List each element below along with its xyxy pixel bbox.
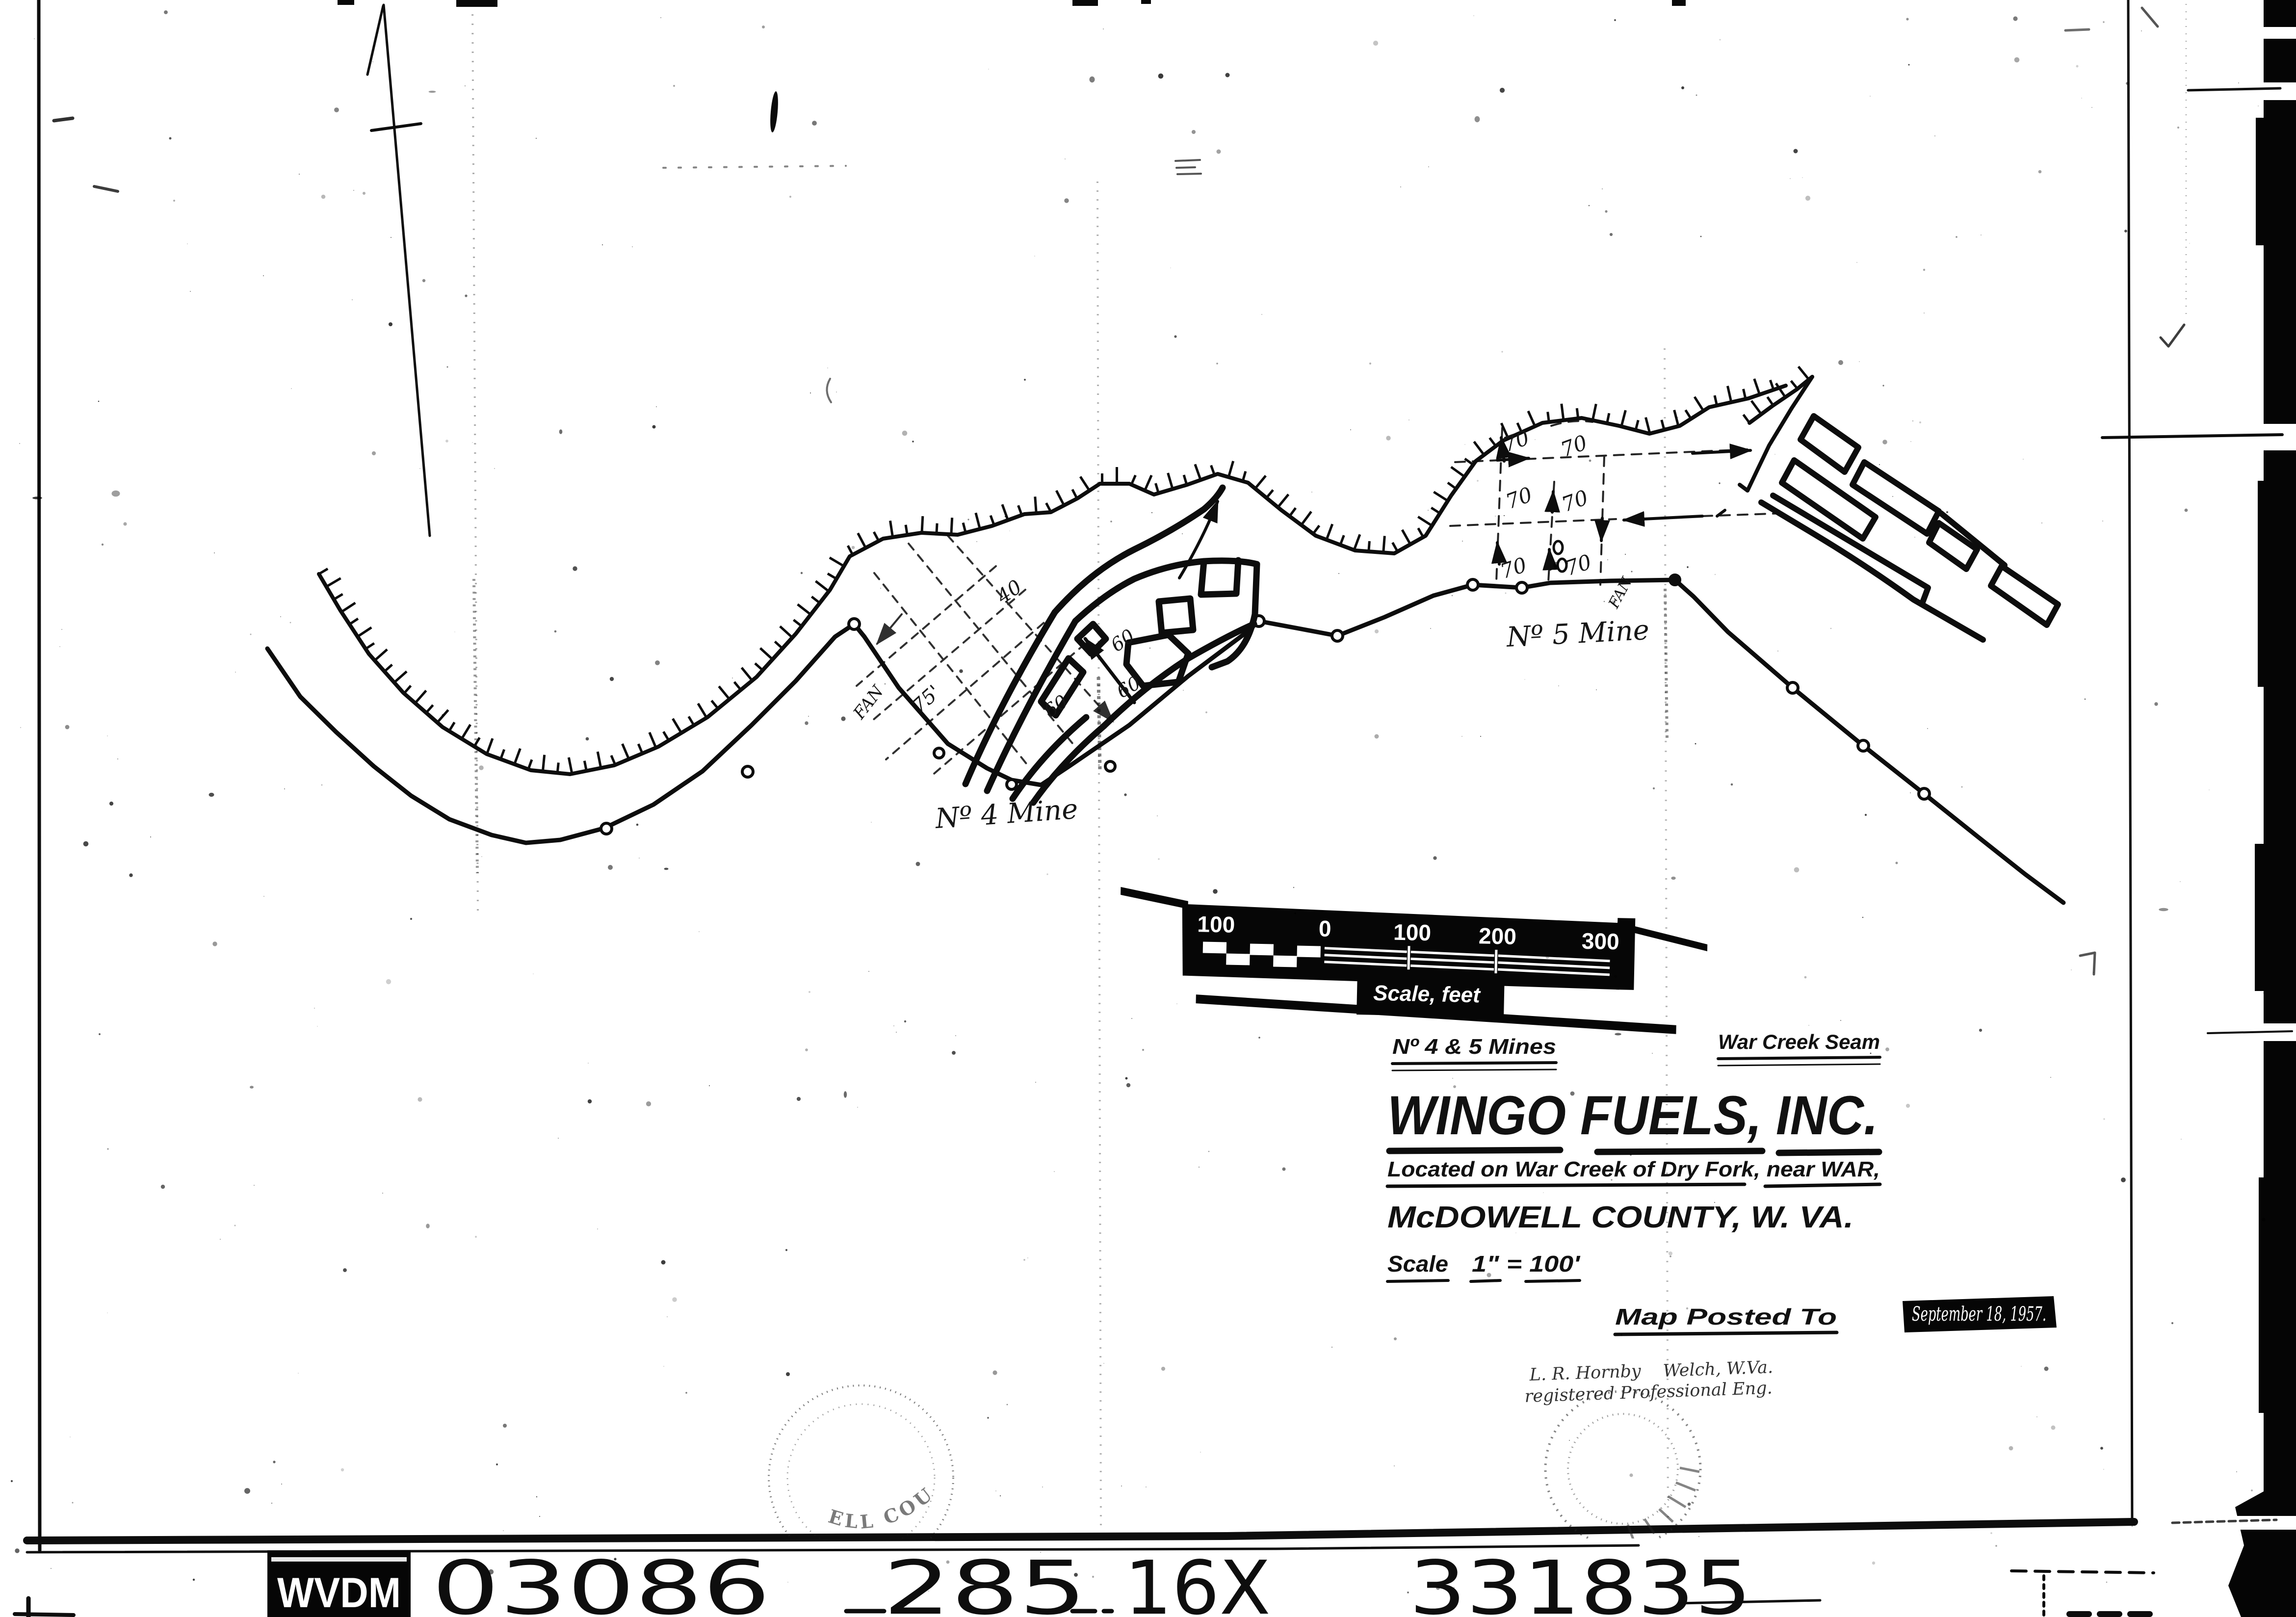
fan-label-4: FAN	[849, 681, 888, 723]
map-title: WINGO FUELS, INC.	[1387, 1085, 1878, 1146]
dim-60: 60	[1107, 625, 1139, 656]
title-block: Nº 4 & 5 Mines War Creek Seam WINGO FUEL…	[1387, 1030, 2057, 1407]
scale-label: Scale	[1387, 1251, 1448, 1277]
engineer-seal	[1545, 1391, 1700, 1546]
left-border-line	[39, 0, 40, 1550]
north-arrow-head	[367, 6, 383, 75]
film-number: 03086	[432, 1545, 770, 1617]
outcrop-wedge	[1749, 377, 1812, 423]
mine5-workings	[1761, 416, 2058, 640]
dim-70: 70	[1559, 485, 1592, 517]
film-number: 285	[883, 1545, 1087, 1617]
film-number: 16X	[1124, 1545, 1271, 1617]
mine4-label: Nº 4 Mine	[933, 793, 1079, 835]
wvdm-badge: WVDM	[267, 1550, 411, 1617]
hachure-ticks	[319, 379, 1774, 774]
ink-blob	[769, 91, 779, 133]
right-border-line	[2128, 0, 2132, 1522]
engineer-signature: L. R. Hornby Welch, W.Va. registered Pro…	[1524, 1357, 1774, 1407]
stray-marks	[54, 0, 2184, 974]
scale-tick: 0	[1318, 915, 1331, 941]
bottom-border-line	[27, 1522, 2134, 1540]
film-number-strip: WVDM 03086 285 16X 331835	[15, 1545, 2156, 1617]
dim-70: 70	[1503, 482, 1536, 514]
scale-tick: 100	[1197, 911, 1235, 938]
mine5-label: Nº 5 Mine	[1505, 614, 1650, 653]
dim-40: 40	[992, 575, 1026, 608]
svg-text:ELL COUNTY: ELL COUNTY	[0, 0, 939, 1533]
check-mark	[2161, 325, 2184, 346]
county-line: McDOWELL COUNTY, W. VA.	[1387, 1200, 1853, 1234]
engineer-place: Welch, W.Va.	[1663, 1357, 1774, 1381]
film-splice-notch	[2257, 27, 2296, 39]
wvdm-badge-text: WVDM	[277, 1569, 401, 1617]
survey-stations	[601, 575, 1930, 834]
scale-tick: 100	[1393, 919, 1432, 946]
scale-value: 1" = 100'	[1472, 1251, 1581, 1277]
header-right: War Creek Seam	[1718, 1030, 1880, 1053]
county-seal: ELL COUNTY	[0, 0, 953, 1570]
film-number: 331835	[1409, 1545, 1751, 1617]
scale-bar: 100 0 100 200 300 Scale, feet	[1118, 887, 1709, 1035]
posted-date-box: September 18, 1957.	[1903, 1296, 2057, 1332]
dim-70: 70	[1497, 552, 1530, 583]
county-seal-text: ELL COUNTY	[0, 0, 939, 1533]
scale-tick: 200	[1479, 923, 1517, 949]
scanned-mine-map-page: Nº 4 Mine Nº 5 Mine FAN FAN 75' 40 60 60…	[0, 0, 2296, 1617]
location-line: Located on War Creek of Dry Fork, near W…	[1387, 1157, 1880, 1181]
title-underline	[1389, 1150, 1560, 1151]
film-grain	[11, 10, 2266, 1593]
scale-bar-caption: Scale, feet	[1373, 981, 1482, 1008]
map-scan-svg: Nº 4 Mine Nº 5 Mine FAN FAN 75' 40 60 60…	[0, 0, 2296, 1617]
posted-label: Map Posted To	[1615, 1304, 1837, 1330]
header-left: Nº 4 & 5 Mines	[1392, 1035, 1556, 1059]
scale-tick: 300	[1581, 928, 1619, 955]
engineer-name: L. R. Hornby	[1529, 1361, 1642, 1385]
dim-70: 70	[1562, 549, 1594, 580]
north-arrow	[367, 5, 430, 536]
posted-date: September 18, 1957.	[1912, 1303, 2046, 1326]
creek-traverse-line	[267, 575, 2063, 903]
